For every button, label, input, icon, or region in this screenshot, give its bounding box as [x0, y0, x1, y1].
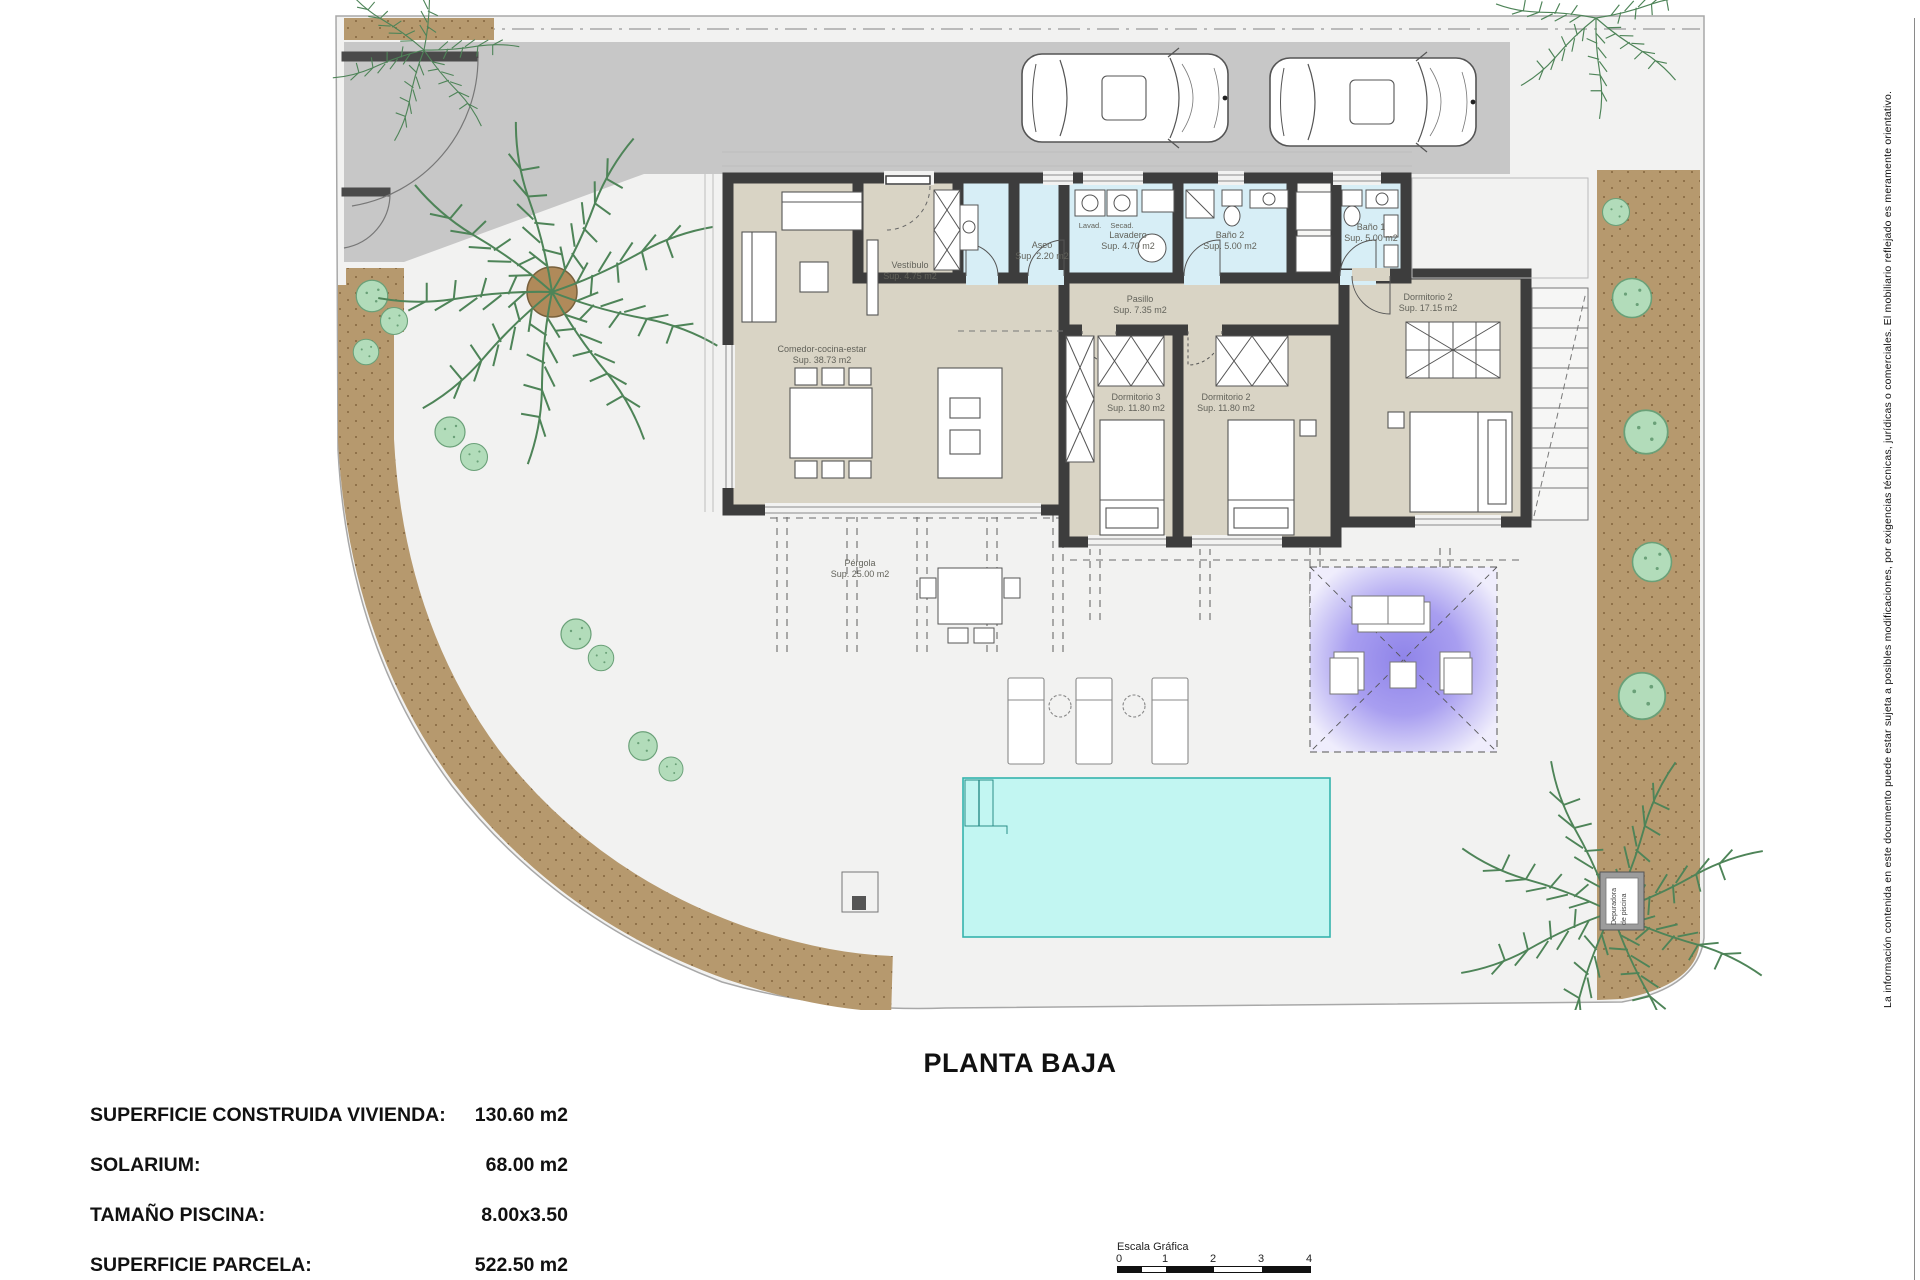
svg-text:Sup. 5.00 m2: Sup. 5.00 m2 — [1203, 241, 1257, 251]
surface-summary: SUPERFICIE CONSTRUIDA VIVIENDA: 130.60 m… — [90, 1104, 568, 1280]
label-vestibulo: Vestíbulo — [891, 260, 928, 270]
svg-text:Sup. 11.80 m2: Sup. 11.80 m2 — [1107, 403, 1165, 413]
label-dryer: Secad. — [1110, 221, 1133, 230]
graphic-scale-ticks: 0 1 2 3 4 — [1117, 1253, 1311, 1266]
label-pool-plant: Depuradora — [1611, 888, 1618, 925]
svg-text:Sup. 2.20 m2: Sup. 2.20 m2 — [1015, 251, 1069, 261]
legal-disclaimer: La información contenida en este documen… — [1882, 30, 1908, 1008]
svg-text:Sup. 7.35 m2: Sup. 7.35 m2 — [1113, 305, 1167, 315]
graphic-scale-bar — [1117, 1266, 1311, 1273]
pool-plant-box: Depuradora de piscina — [1600, 872, 1644, 930]
pool — [963, 778, 1330, 937]
svg-text:Sup. 17.15 m2: Sup. 17.15 m2 — [1399, 303, 1458, 313]
label-bano1: Baño 1 — [1357, 222, 1386, 232]
car-2 — [1270, 52, 1476, 152]
page-title: PLANTA BAJA — [820, 1048, 1220, 1079]
summary-row: SUPERFICIE PARCELA: 522.50 m2 — [90, 1254, 568, 1277]
svg-text:Sup. 5.00 m2: Sup. 5.00 m2 — [1344, 233, 1398, 243]
garden-strip-road — [344, 18, 494, 40]
label-pergola: Pérgola — [844, 558, 875, 568]
label-bano2: Baño 2 — [1216, 230, 1245, 240]
svg-text:de piscina: de piscina — [1621, 893, 1628, 925]
label-lavadero: Lavadero — [1109, 230, 1147, 240]
sheet-border-line — [1914, 18, 1915, 1280]
label-pasillo: Pasillo — [1127, 294, 1154, 304]
label-dorm1: Dormitorio 2 — [1403, 292, 1452, 302]
site-plan-drawing: Comedor-cocina-estar Sup. 38.73 m2 Vestí… — [0, 0, 1920, 1010]
svg-text:Sup. 38.73 m2: Sup. 38.73 m2 — [793, 355, 852, 365]
summary-row: SOLARIUM: 68.00 m2 — [90, 1154, 568, 1177]
summary-row: SUPERFICIE CONSTRUIDA VIVIENDA: 130.60 m… — [90, 1104, 568, 1127]
graphic-scale-label: Escala Gráfica — [1117, 1241, 1311, 1253]
svg-text:Sup. 4.70 m2: Sup. 4.70 m2 — [1101, 241, 1155, 251]
svg-text:Sup. 25.00 m2: Sup. 25.00 m2 — [831, 569, 890, 579]
solarium-lounge — [1310, 567, 1497, 752]
label-aseo: Aseo — [1032, 240, 1053, 250]
svg-text:Sup. 4.75 m2: Sup. 4.75 m2 — [883, 271, 937, 281]
label-dorm2: Dormitorio 2 — [1201, 392, 1250, 402]
label-comedor: Comedor-cocina-estar — [777, 344, 866, 354]
car-1 — [1022, 48, 1228, 148]
label-washer: Lavad. — [1079, 221, 1102, 230]
svg-text:Sup. 11.80 m2: Sup. 11.80 m2 — [1197, 403, 1255, 413]
summary-row: TAMAÑO PISCINA: 8.00x3.50 — [90, 1204, 568, 1227]
label-dorm3: Dormitorio 3 — [1111, 392, 1160, 402]
graphic-scale: Escala Gráfica 0 1 2 3 4 — [1117, 1241, 1311, 1273]
floor-plan-sheet: Comedor-cocina-estar Sup. 38.73 m2 Vestí… — [0, 0, 1920, 1280]
sun-loungers — [1008, 678, 1188, 764]
